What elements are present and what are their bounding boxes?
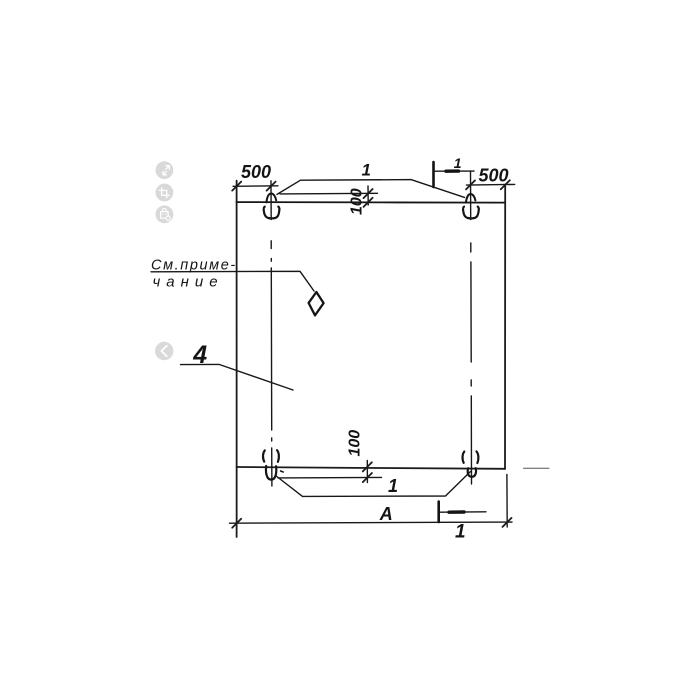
svg-text:500: 500 xyxy=(241,162,271,182)
svg-text:чание: чание xyxy=(153,273,224,290)
svg-text:1: 1 xyxy=(362,161,371,180)
svg-text:100: 100 xyxy=(347,430,364,457)
svg-text:1: 1 xyxy=(454,155,462,171)
svg-text:А: А xyxy=(379,504,393,524)
svg-text:1: 1 xyxy=(455,522,466,543)
svg-text:500: 500 xyxy=(479,166,509,186)
svg-text:1: 1 xyxy=(388,476,398,496)
svg-text:100: 100 xyxy=(349,188,366,215)
